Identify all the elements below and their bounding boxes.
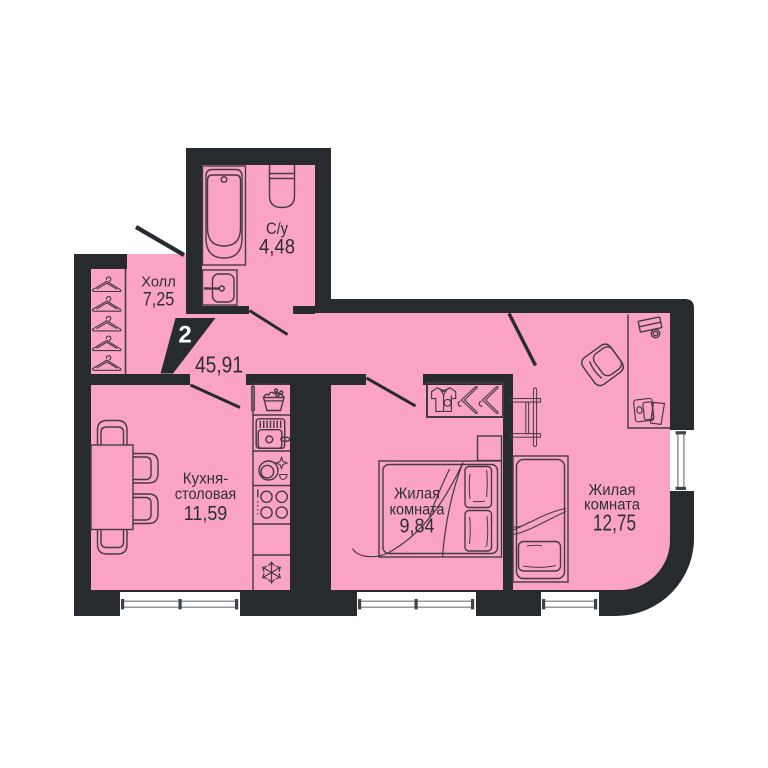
svg-text:12,75: 12,75 (593, 510, 636, 536)
svg-text:столовая: столовая (175, 486, 237, 503)
svg-text:4,48: 4,48 (259, 236, 295, 259)
svg-text:11,59: 11,59 (184, 502, 228, 525)
svg-text:45,91: 45,91 (195, 352, 243, 378)
svg-text:Жилая: Жилая (394, 486, 440, 503)
svg-text:2: 2 (178, 322, 191, 349)
svg-text:Кухня-: Кухня- (183, 471, 229, 488)
svg-text:7,25: 7,25 (143, 289, 175, 311)
